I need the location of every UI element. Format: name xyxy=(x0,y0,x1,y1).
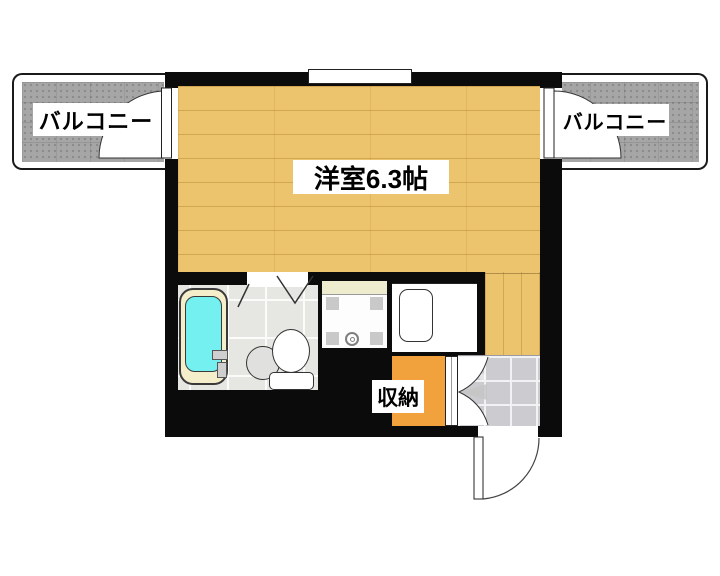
entrance-door-leaf xyxy=(474,437,483,499)
storage-door xyxy=(445,356,458,426)
entrance-door-opening xyxy=(478,426,538,437)
balcony-left-label: バルコニー xyxy=(33,103,159,136)
hall-floor xyxy=(485,272,540,355)
storage-label: 収納 xyxy=(372,380,424,413)
entrance-door-arc xyxy=(483,438,539,499)
drain-icon-center xyxy=(350,337,355,342)
pan-corner xyxy=(370,297,383,310)
kitchen-sink xyxy=(399,289,433,342)
entrance-tile-floor xyxy=(458,355,540,426)
window xyxy=(308,69,412,84)
balcony-right-label: バルコニー xyxy=(561,104,669,136)
toilet-tank xyxy=(269,372,314,390)
floor-plan: 洋室6.3帖 バルコニー バルコニー 収納 xyxy=(0,0,720,576)
toilet-bowl xyxy=(272,329,310,373)
faucet-icon xyxy=(212,350,228,360)
laundry-counter xyxy=(322,281,387,295)
bathtub-water xyxy=(185,296,222,372)
bathroom-door-opening xyxy=(247,272,308,287)
faucet-icon xyxy=(217,362,227,378)
balcony-left-door-opening xyxy=(165,88,178,159)
main-room-label: 洋室6.3帖 xyxy=(293,160,449,194)
balcony-right-door-opening xyxy=(540,88,562,159)
pan-corner xyxy=(326,297,339,310)
pan-corner xyxy=(370,332,383,345)
pan-corner xyxy=(326,332,339,345)
